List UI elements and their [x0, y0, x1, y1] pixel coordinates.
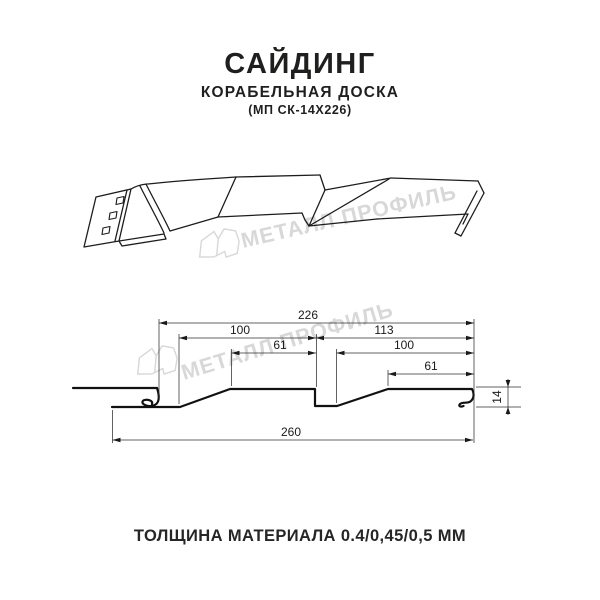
dim-260: 260: [281, 425, 301, 439]
metal-profil-logo-fold: [215, 239, 219, 257]
lock-hook: [142, 388, 158, 406]
watermark-text: МЕТАЛЛ ПРОФИЛЬ: [178, 297, 396, 384]
metal-profil-logo-icon: [198, 228, 240, 259]
nail-hole: [116, 197, 124, 205]
metal-profil-logo-fold: [153, 356, 157, 374]
dim-61-right: 61: [424, 359, 438, 373]
dimension-arrowheads: [113, 321, 511, 442]
watermark-3d: МЕТАЛЛ ПРОФИЛЬ: [198, 180, 459, 259]
panel-outline: [112, 389, 474, 407]
material-thickness-note: ТОЛЩИНА МАТЕРИАЛА 0.4/0,45/0,5 ММ: [0, 527, 600, 545]
dimension-lines: [113, 319, 522, 443]
nail-hole: [109, 212, 117, 220]
metal-profil-logo-icon: [136, 345, 178, 376]
dim-14: 14: [490, 390, 504, 404]
product-diagram-page: САЙДИНГ КОРАБЕЛЬНАЯ ДОСКА (МП СК-14Х226)…: [0, 0, 600, 600]
profile-cross-section: [73, 388, 474, 407]
dim-113: 113: [374, 323, 393, 337]
dim-226: 226: [298, 308, 318, 322]
dim-61-left: 61: [273, 338, 287, 352]
nail-hole: [102, 227, 110, 235]
diagram-canvas: МЕТАЛЛ ПРОФИЛЬ МЕТАЛЛ ПРОФИЛЬ: [0, 0, 600, 600]
watermark-section: МЕТАЛЛ ПРОФИЛЬ: [136, 297, 396, 384]
dim-100-right: 100: [394, 338, 414, 352]
dim-100-left: 100: [230, 323, 250, 337]
